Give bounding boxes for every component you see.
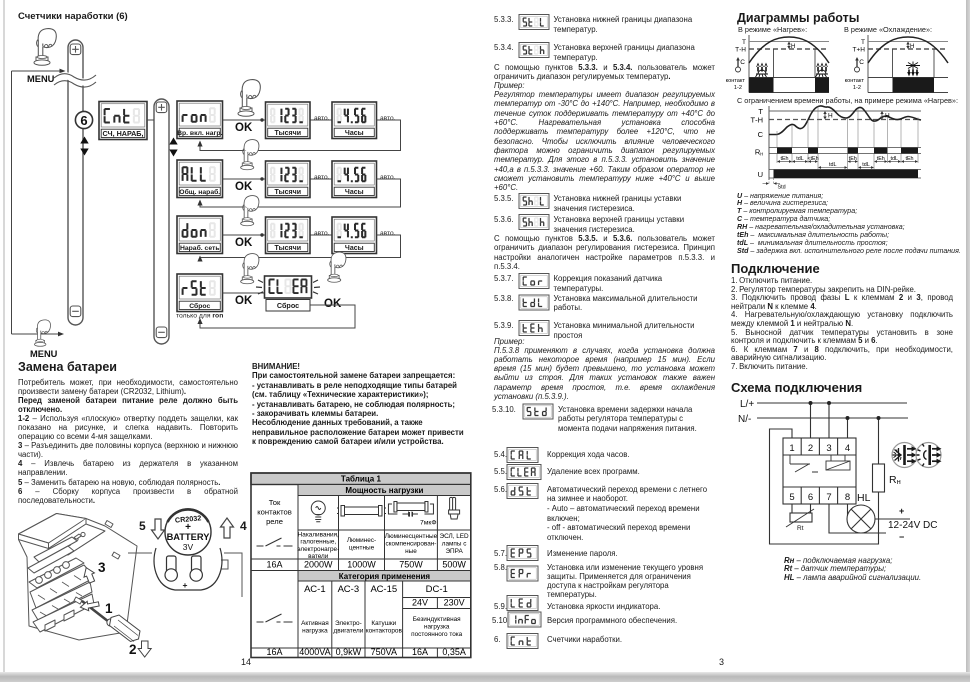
svg-text:Rt: Rt [797, 525, 804, 532]
svg-text:8: 8 [845, 492, 850, 503]
svg-text:L/+: L/+ [740, 399, 754, 410]
svg-text:1: 1 [789, 443, 794, 454]
svg-text:−: − [899, 532, 904, 542]
svg-text:12-24V DC: 12-24V DC [888, 520, 937, 531]
svg-text:+: + [899, 506, 904, 516]
svg-text:3: 3 [826, 443, 831, 454]
svg-text:4: 4 [845, 443, 850, 454]
svg-text:5: 5 [789, 492, 794, 503]
svg-text:6: 6 [808, 492, 813, 503]
svg-text:7: 7 [826, 492, 831, 503]
svg-text:HL: HL [857, 492, 871, 504]
svg-text:Rн: Rн [889, 474, 901, 486]
svg-text:2: 2 [808, 443, 813, 454]
svg-text:N/-: N/- [738, 414, 751, 425]
